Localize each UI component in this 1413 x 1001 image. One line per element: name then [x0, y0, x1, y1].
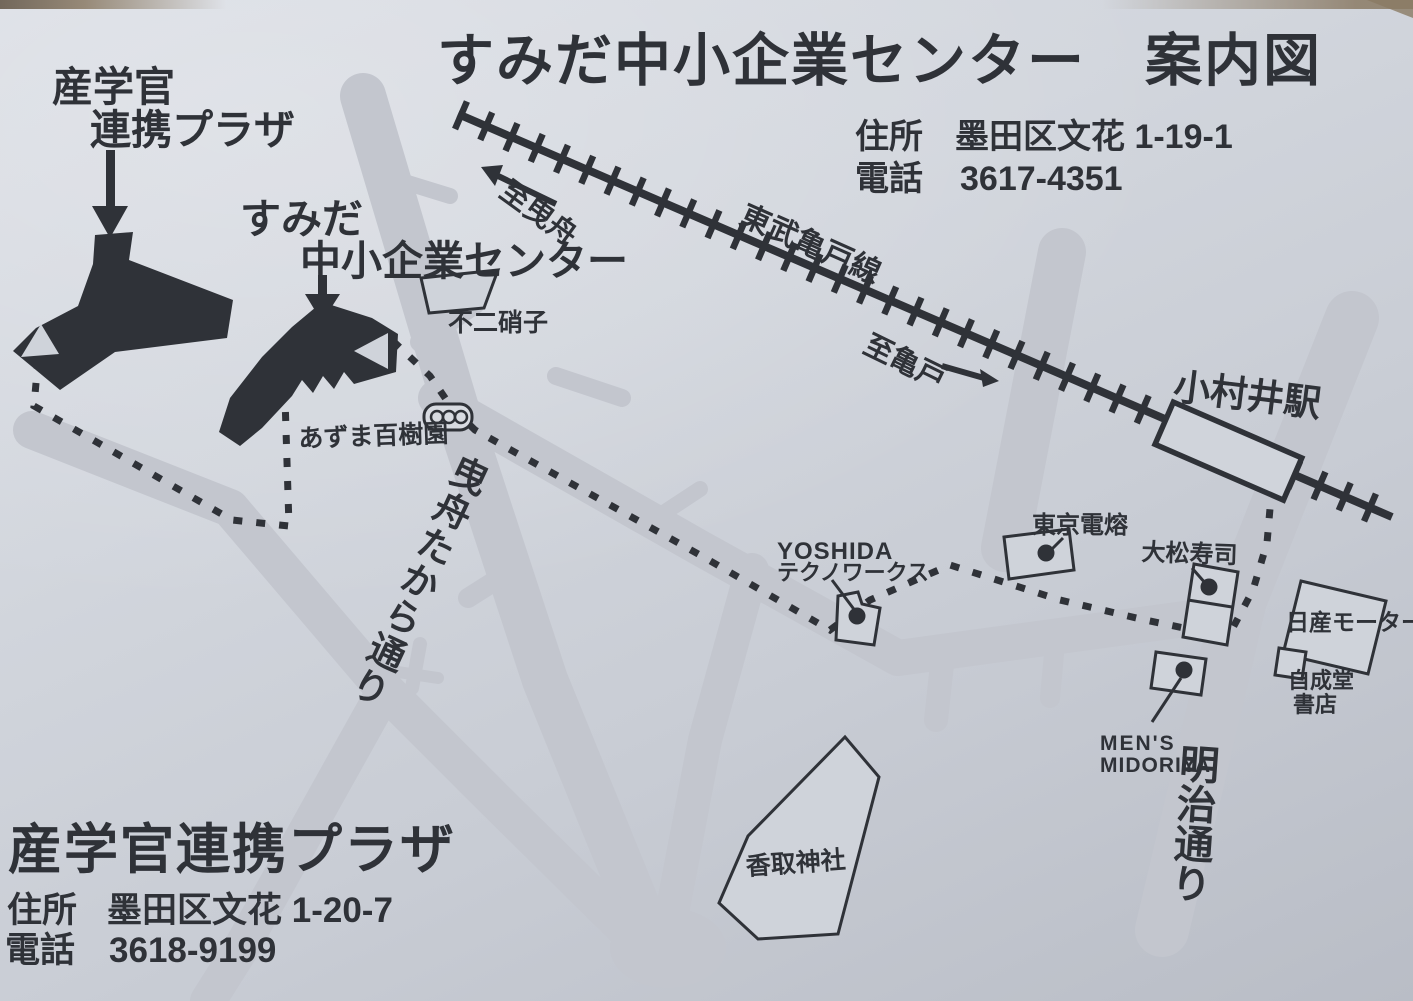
jiseido-label-line1: 自成堂 — [1288, 669, 1354, 692]
map-title: すみだ中小企業センター 案内図 — [437, 32, 1322, 92]
mens-midoriya-label-line2: MIDORIYA — [1100, 755, 1211, 777]
plaza-phone-line: 電話 3618-9199 — [5, 933, 276, 970]
plaza-address-line: 住所 墨田区文花 1-20-7 — [7, 893, 393, 930]
mens-midoriya-dot-icon — [1176, 662, 1193, 679]
guide-map: すみだ中小企業センター 案内図 住所 墨田区文花 1-19-1 電話 3617-… — [0, 0, 1413, 1001]
yoshida-label-line2: テクノワークス — [777, 561, 929, 584]
plaza-label-line1: 産学官 — [52, 66, 175, 109]
plaza-phone-value: 3618-9199 — [109, 933, 276, 970]
to-kameido-arrow-icon — [942, 366, 999, 387]
azuma-hyakujuen-label: あずま百樹園 — [298, 421, 449, 452]
plaza-label-line2: 連携プラザ — [90, 109, 295, 152]
road-stub-south-1 — [936, 646, 944, 720]
plaza-building — [13, 232, 233, 390]
center-phone-label: 電話 — [855, 162, 923, 198]
road-stub-junction-right — [398, 672, 438, 678]
katori-shrine-outline — [719, 737, 879, 939]
yoshida-dot-icon — [849, 608, 866, 625]
plaza-address-value: 墨田区文花 1-20-7 — [107, 893, 393, 930]
road-stub-south-2 — [1050, 632, 1056, 698]
road-north-side-street — [1005, 252, 1062, 548]
center-address-label: 住所 — [855, 120, 923, 156]
nissan-motor-label: 日産モーター — [1286, 610, 1413, 634]
road-stub-junction-up — [412, 644, 420, 688]
road-stub-mid — [662, 489, 700, 514]
center-label-line1: すみだ — [240, 198, 363, 241]
plaza-footer-name: 産学官連携プラザ — [8, 822, 456, 879]
jiseido-label-line2: 書店 — [1293, 693, 1337, 716]
center-phone-line: 電話 3617-4351 — [855, 162, 1123, 198]
road-stub-east — [556, 376, 622, 398]
center-address-line: 住所 墨田区文花 1-19-1 — [855, 120, 1233, 156]
center-label-line2: 中小企業センター — [300, 240, 628, 283]
center-address-value: 墨田区文花 1-19-1 — [955, 120, 1233, 156]
mens-midoriya-label-line1: MEN'S — [1100, 733, 1176, 755]
road-junction-blob — [610, 908, 726, 988]
fuji-glass-label: 不二硝子 — [448, 310, 548, 336]
center-phone-value: 3617-4351 — [960, 162, 1123, 198]
plaza-down-arrow-icon — [92, 150, 128, 238]
plaza-phone-label: 電話 — [5, 933, 75, 970]
tokyo-denyo-label: 東京電熔 — [1032, 513, 1128, 538]
plaza-address-label: 住所 — [7, 893, 77, 930]
daimatsu-sushi-label: 大松寿司 — [1141, 540, 1238, 569]
